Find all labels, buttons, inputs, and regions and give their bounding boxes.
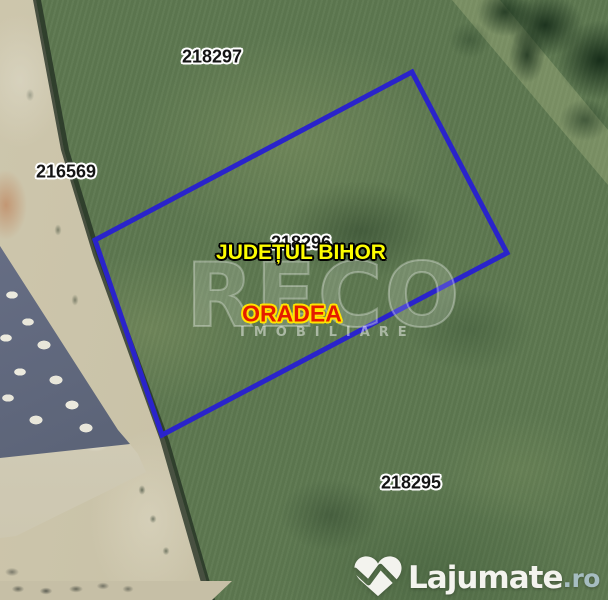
city-label: ORADEA xyxy=(242,301,342,328)
county-label: JUDEȚUL BIHOR xyxy=(216,241,386,265)
satellite-map: RECO IMOBILIARE 218297 216569 218296 218… xyxy=(0,0,608,600)
parcel-label-218297: 218297 xyxy=(182,47,242,68)
parcel-label-216569: 216569 xyxy=(36,162,96,183)
parcel-label-218295: 218295 xyxy=(381,473,441,494)
